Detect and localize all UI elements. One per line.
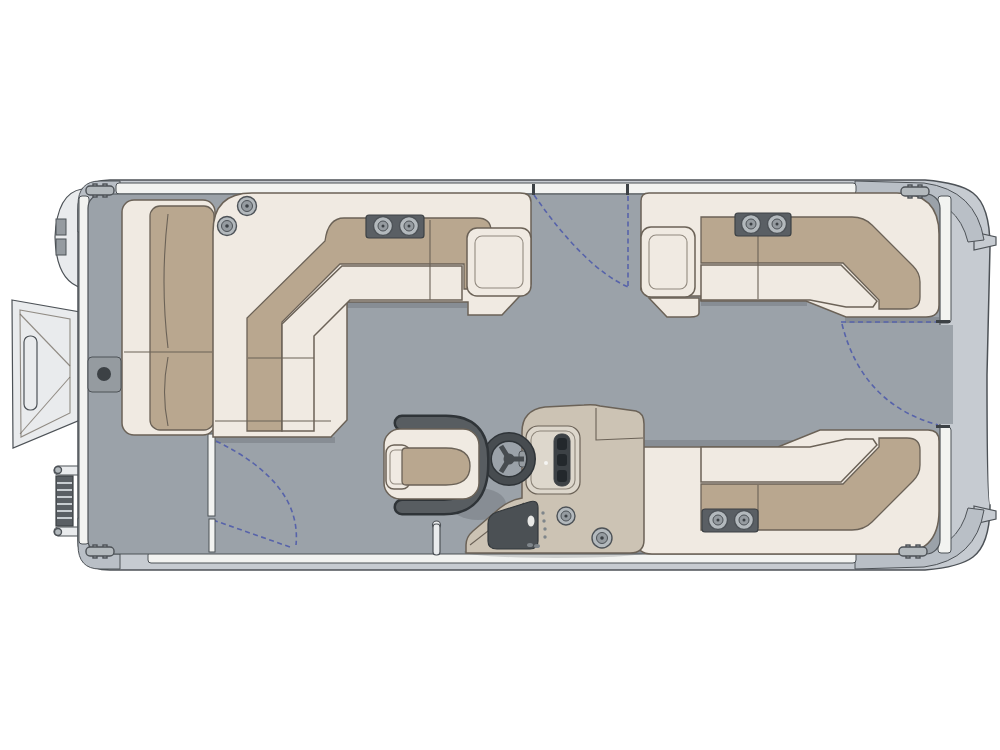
cup-holder-module xyxy=(702,509,758,532)
captain-chair xyxy=(384,423,481,507)
table-pedestal xyxy=(433,521,441,555)
chair-seat-pad xyxy=(402,448,470,485)
cleat xyxy=(86,184,114,197)
cleat xyxy=(899,545,927,558)
bow-boarding-ramp xyxy=(12,300,80,448)
ramp-handle xyxy=(24,336,37,410)
pontoon-floorplan xyxy=(0,0,1000,750)
cleat xyxy=(901,185,929,198)
bow-walkway-latch xyxy=(88,357,121,392)
floorplan-canvas xyxy=(0,0,1000,750)
cup-holder-module xyxy=(366,215,424,238)
cleat xyxy=(86,545,114,558)
port-gate-panel xyxy=(208,434,215,516)
stern-gate-opening xyxy=(936,325,953,424)
cup-holder-module xyxy=(735,213,791,236)
starboard-aft-l-lounge xyxy=(641,193,939,317)
bow-lounge-seat xyxy=(122,200,215,435)
